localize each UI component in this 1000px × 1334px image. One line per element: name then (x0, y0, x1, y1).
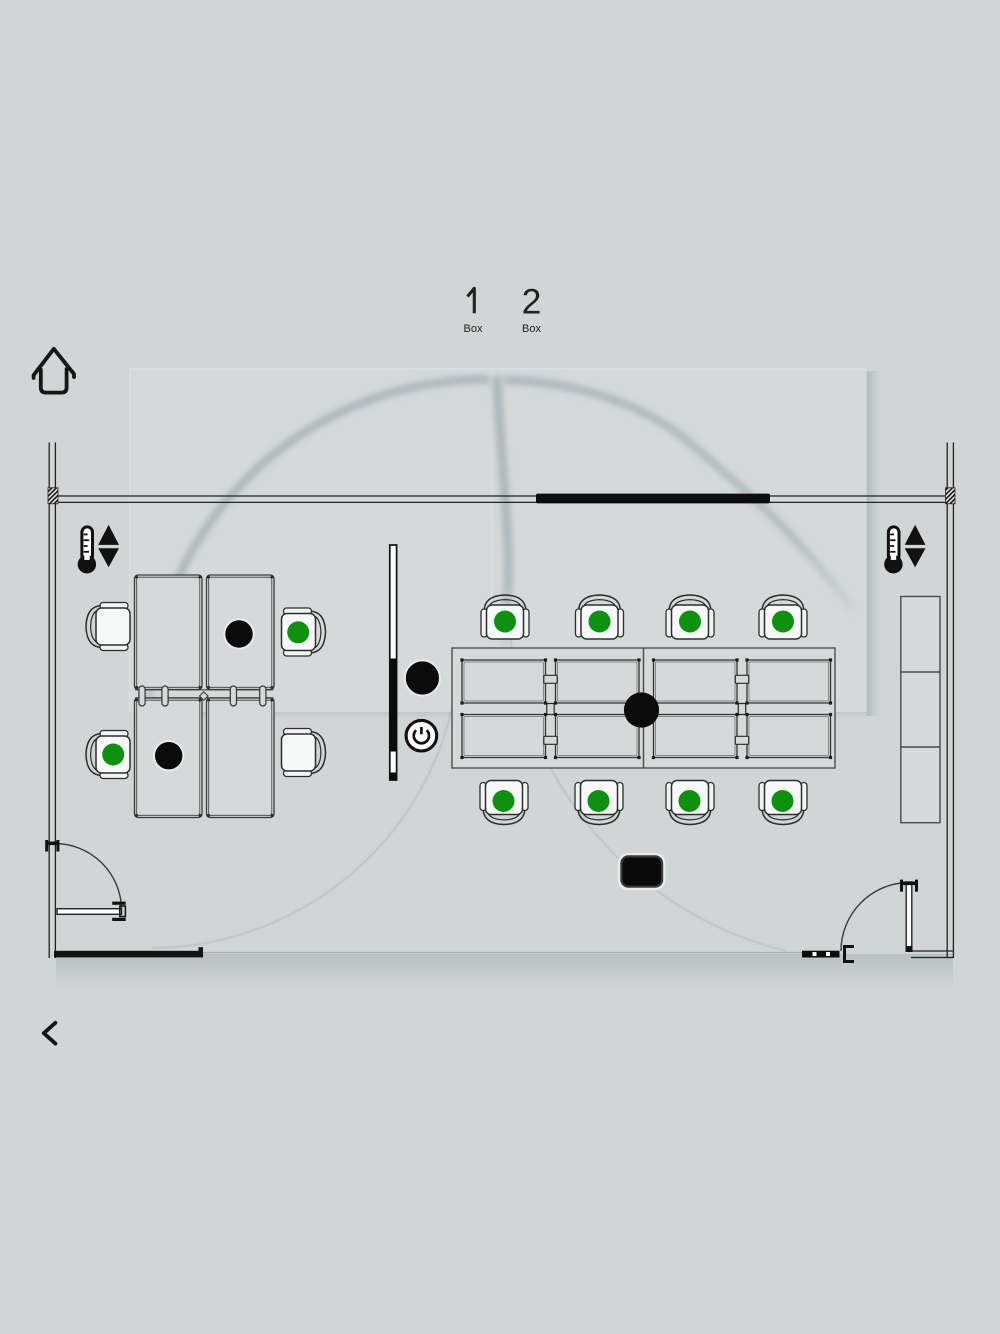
svg-text:Box: Box (464, 323, 483, 335)
svg-text:2: 2 (522, 282, 542, 322)
svg-text:Box: Box (522, 323, 541, 335)
